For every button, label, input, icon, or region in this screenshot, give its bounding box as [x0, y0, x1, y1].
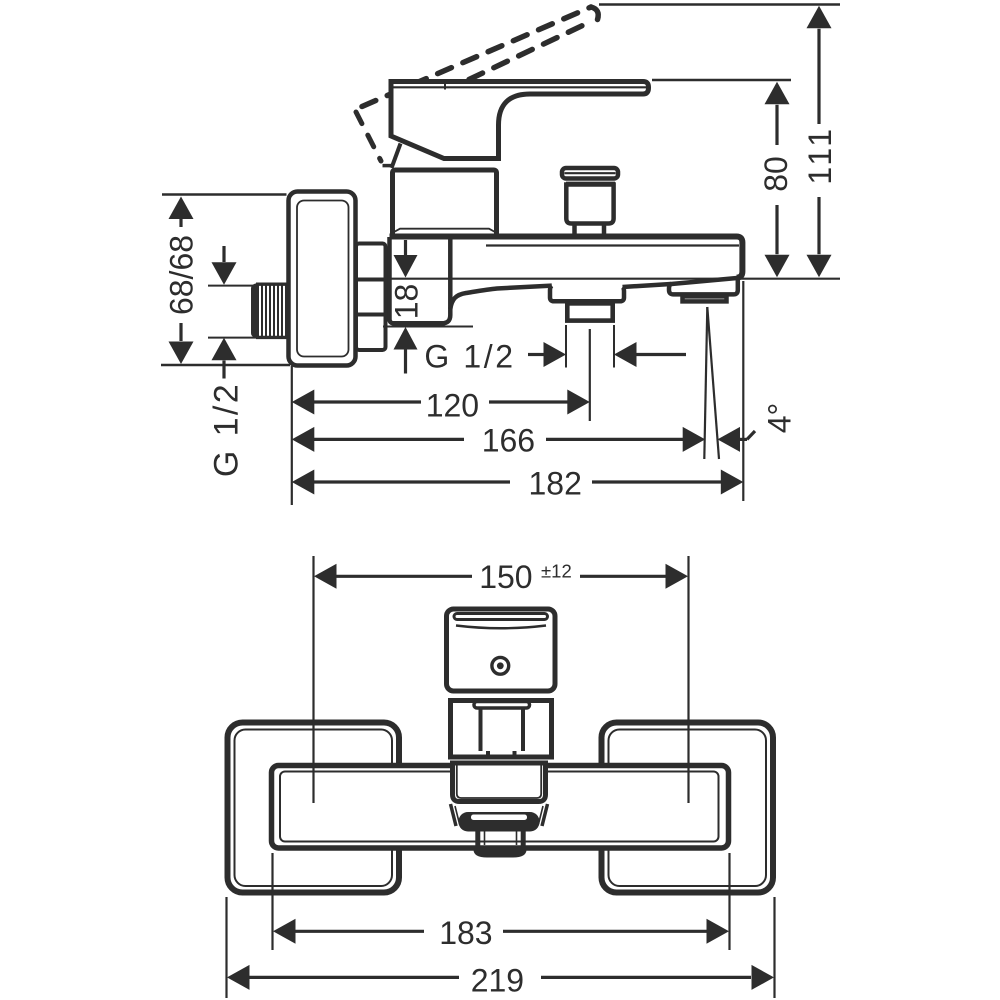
svg-text:219: 219 [471, 963, 524, 999]
svg-text:111: 111 [802, 125, 838, 184]
svg-text:4°: 4° [762, 403, 798, 434]
svg-text:80: 80 [758, 156, 794, 192]
svg-text:120: 120 [426, 387, 479, 423]
svg-text:183: 183 [439, 915, 492, 951]
svg-text:18: 18 [389, 284, 425, 320]
svg-text:G 1/2: G 1/2 [208, 382, 246, 477]
svg-text:182: 182 [529, 466, 582, 502]
svg-text:150: 150 [479, 559, 532, 595]
svg-text:G 1/2: G 1/2 [424, 339, 515, 375]
svg-text:68/68: 68/68 [164, 235, 200, 315]
svg-text:166: 166 [482, 423, 535, 459]
svg-text:±12: ±12 [541, 560, 572, 581]
